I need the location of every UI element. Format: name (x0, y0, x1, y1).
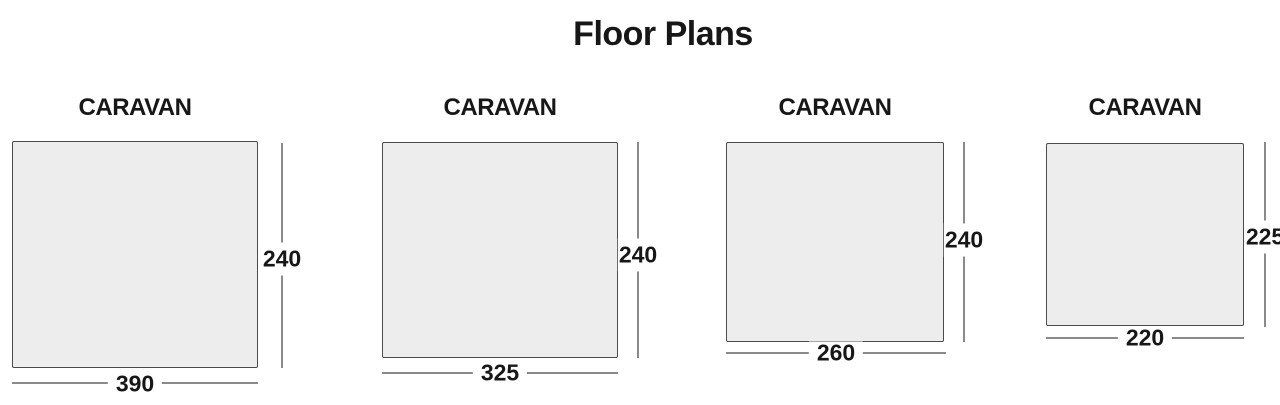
plan-title: CARAVAN (12, 96, 258, 120)
width-dimension-label: 390 (108, 373, 162, 396)
plan-title: CARAVAN (1046, 96, 1244, 120)
width-dimension-label: 325 (473, 362, 527, 385)
height-dimension-label: 240 (944, 224, 984, 257)
height-dimension-label: 225 (1245, 221, 1280, 254)
page-title: Floor Plans (573, 17, 753, 51)
floor-rect (1046, 143, 1244, 326)
floor-rect (382, 142, 618, 358)
width-dimension-label: 260 (809, 342, 863, 365)
floor-rect (726, 142, 944, 342)
floor-rect (12, 141, 258, 368)
width-dimension-label: 220 (1118, 327, 1172, 350)
height-dimension-label: 240 (262, 243, 302, 276)
plan-title: CARAVAN (726, 96, 944, 120)
height-dimension-label: 240 (618, 239, 658, 272)
plan-title: CARAVAN (382, 96, 618, 120)
